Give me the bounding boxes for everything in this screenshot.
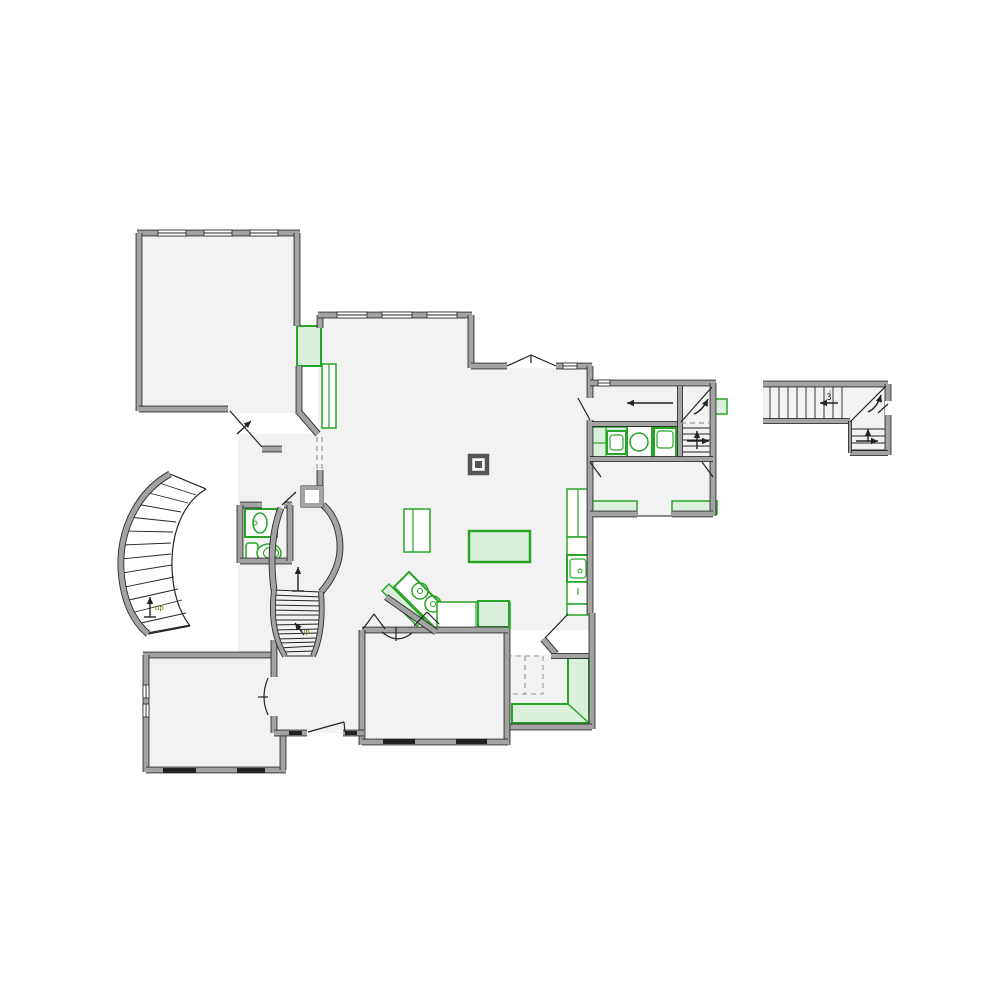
study-window-2	[237, 768, 265, 773]
kitchen-island	[469, 531, 530, 562]
detached-stair-door-gap	[885, 401, 892, 415]
great-room-column-core	[475, 461, 482, 468]
great-room-window-1	[337, 312, 367, 318]
svg-text:up: up	[301, 628, 310, 636]
kitchen-tall-cabinet-left	[404, 509, 430, 552]
fireplace	[297, 326, 321, 366]
entry-door-leaf-left	[507, 355, 531, 366]
tl-room-window-2	[204, 230, 232, 236]
dining-room-floor	[362, 630, 508, 744]
closet-angled-wall	[543, 639, 556, 654]
svg-text:3: 3	[826, 393, 832, 403]
stair2-up-label: up	[301, 628, 310, 636]
foyer-window-1	[289, 731, 302, 735]
curved-stair-inner-edge	[172, 489, 206, 626]
great-room-window-4	[563, 363, 577, 369]
study-west-window-2	[143, 704, 149, 717]
curved-stair-up-label: up	[155, 604, 164, 612]
range-oven	[478, 601, 509, 627]
foyer-hall-floor	[238, 434, 362, 733]
detached-stair-count-label: 3	[826, 393, 832, 403]
curved-stair-top-cap	[170, 474, 206, 489]
dining-window-1	[383, 739, 415, 744]
kitchen-cabinet-upper	[567, 537, 589, 555]
floor-plan-page: upup3	[0, 0, 1000, 1000]
entry-door-leaf-right	[531, 355, 556, 366]
great-room-north-floor	[318, 315, 472, 371]
hall-niche	[303, 488, 321, 505]
kitchen-cabinet-lower	[567, 604, 589, 615]
curved-stair-up-arrow	[147, 597, 153, 617]
floor-plan-canvas: upup3	[0, 0, 1000, 1000]
great-room-window-3	[427, 312, 457, 318]
great-room-window-2	[382, 312, 412, 318]
foyer-window-2	[345, 731, 357, 735]
tl-room-window-1	[158, 230, 186, 236]
detached-stair-floor-b	[850, 384, 890, 455]
top-left-room-floor	[137, 233, 300, 413]
wing-window	[598, 380, 610, 386]
curved-stair-bottom-cap	[148, 626, 190, 634]
svg-text:up: up	[155, 604, 164, 612]
dining-window-2	[456, 739, 487, 744]
tl-room-window-3	[250, 230, 278, 236]
tl-room-angled-wall	[299, 412, 318, 434]
study-window-1	[163, 768, 196, 773]
study-west-window-1	[143, 685, 149, 698]
